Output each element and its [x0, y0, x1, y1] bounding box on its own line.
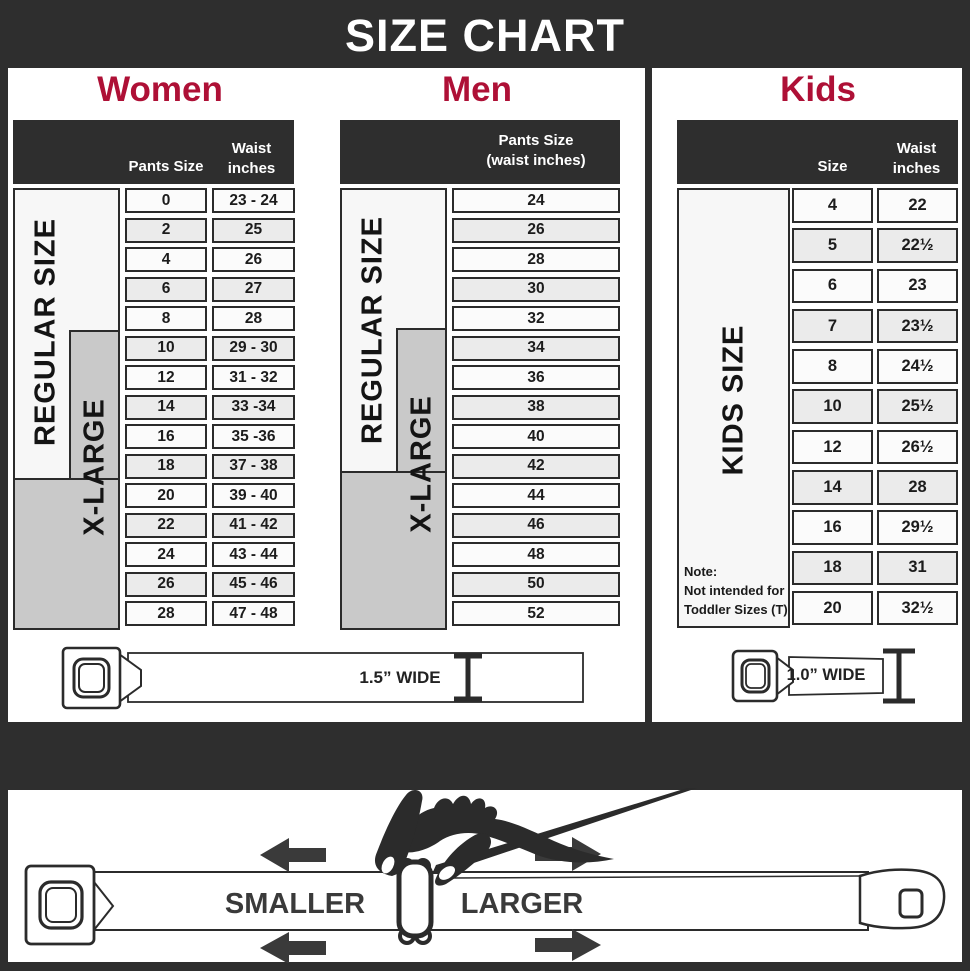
waist-cell: 43 - 44: [212, 542, 295, 567]
waist-cell: 35 -36: [212, 424, 295, 449]
waist-cell: 31: [877, 551, 958, 586]
pants-size-cell: 10: [125, 336, 207, 361]
women-table-row: 2 25: [125, 218, 297, 243]
size-cell: 20: [792, 591, 873, 626]
women-xlarge-label: X-LARGE: [79, 398, 112, 536]
kids-table-row: 5 22½: [792, 228, 958, 263]
men-table-header: Pants Size(waist inches): [340, 120, 620, 184]
women-table-row: 22 41 - 42: [125, 513, 297, 538]
pants-size-cell: 34: [452, 336, 620, 361]
kids-heading: Kids: [780, 70, 856, 110]
waist-cell: 41 - 42: [212, 513, 295, 538]
pants-size-cell: 38: [452, 395, 620, 420]
kids-table-row: 7 23½: [792, 309, 958, 344]
page-title: SIZE CHART: [345, 10, 625, 62]
pants-size-cell: 4: [125, 247, 207, 272]
men-table-row: 36: [452, 365, 620, 390]
pants-size-cell: 36: [452, 365, 620, 390]
waist-cell: 23½: [877, 309, 958, 344]
size-cell: 10: [792, 389, 873, 424]
size-cell: 14: [792, 470, 873, 505]
waist-cell: 28: [877, 470, 958, 505]
pants-size-cell: 24: [125, 542, 207, 567]
pants-size-cell: 12: [125, 365, 207, 390]
pants-size-cell: 28: [452, 247, 620, 272]
kids-table-row: 4 22: [792, 188, 958, 223]
men-regular-size-label: REGULAR SIZE: [357, 216, 390, 444]
arrow-right-icon: [535, 929, 601, 961]
section-divider: [645, 68, 652, 722]
waist-cell: 31 - 32: [212, 365, 295, 390]
pants-size-cell: 26: [452, 218, 620, 243]
women-table-row: 24 43 - 44: [125, 542, 297, 567]
pants-size-cell: 32: [452, 306, 620, 331]
width-marker-icon: [883, 651, 915, 701]
title-banner: SIZE CHART: [0, 0, 970, 68]
kids-belt-width-label: 1.0” WIDE: [766, 666, 886, 685]
waist-cell: 29½: [877, 510, 958, 545]
adult-belt-width-label: 1.5” WIDE: [330, 668, 470, 688]
kids-table-header: Size Waistinches: [677, 120, 958, 184]
waist-cell: 33 -34: [212, 395, 295, 420]
men-table-row: 26: [452, 218, 620, 243]
waist-cell: 22: [877, 188, 958, 223]
women-regular-size-label: REGULAR SIZE: [30, 218, 63, 446]
women-heading: Women: [97, 70, 223, 110]
arrow-left-icon: [260, 932, 326, 963]
women-col2-header: Waistinches: [209, 139, 294, 180]
men-table-row: 32: [452, 306, 620, 331]
waist-cell: 26½: [877, 430, 958, 465]
kids-table-row: 10 25½: [792, 389, 958, 424]
size-cell: 4: [792, 188, 873, 223]
kids-note: Note: Not intended for Toddler Sizes (T): [684, 563, 788, 620]
men-table-row: 34: [452, 336, 620, 361]
arrow-left-icon: [260, 838, 326, 872]
kids-table-row: 6 23: [792, 269, 958, 304]
waist-cell: 23: [877, 269, 958, 304]
pants-size-cell: 18: [125, 454, 207, 479]
men-col-header: Pants Size(waist inches): [452, 131, 620, 172]
men-table-row: 42: [452, 454, 620, 479]
men-xlarge-label: X-LARGE: [406, 395, 439, 533]
pants-size-cell: 24: [452, 188, 620, 213]
pants-size-cell: 20: [125, 483, 207, 508]
women-table-row: 20 39 - 40: [125, 483, 297, 508]
women-table-row: 8 28: [125, 306, 297, 331]
size-cell: 5: [792, 228, 873, 263]
smaller-label: SMALLER: [210, 888, 380, 921]
waist-cell: 29 - 30: [212, 336, 295, 361]
women-table-row: 10 29 - 30: [125, 336, 297, 361]
women-size-table: 0 23 - 24 2 25 4 26 6 27 8 28: [125, 188, 297, 631]
men-table-row: 44: [452, 483, 620, 508]
waist-cell: 37 - 38: [212, 454, 295, 479]
size-cell: 6: [792, 269, 873, 304]
waist-cell: 25: [212, 218, 295, 243]
men-heading: Men: [442, 70, 512, 110]
pants-size-cell: 6: [125, 277, 207, 302]
pants-size-cell: 40: [452, 424, 620, 449]
pants-size-cell: 30: [452, 277, 620, 302]
pants-size-cell: 14: [125, 395, 207, 420]
pants-size-cell: 48: [452, 542, 620, 567]
size-chart-infographic: SIZE CHART Women Men Kids Pants Size Wai…: [0, 0, 970, 971]
men-table-row: 30: [452, 277, 620, 302]
men-table-row: 40: [452, 424, 620, 449]
size-cell: 16: [792, 510, 873, 545]
bottom-frame: [0, 962, 970, 971]
pants-size-cell: 16: [125, 424, 207, 449]
pants-size-cell: 42: [452, 454, 620, 479]
women-table-header: Pants Size Waistinches: [13, 120, 294, 184]
men-table-row: 38: [452, 395, 620, 420]
waist-cell: 27: [212, 277, 295, 302]
waist-cell: 28: [212, 306, 295, 331]
size-cell: 7: [792, 309, 873, 344]
women-table-row: 4 26: [125, 247, 297, 272]
kids-table-row: 18 31: [792, 551, 958, 586]
men-table-row: 52: [452, 601, 620, 626]
waist-cell: 22½: [877, 228, 958, 263]
waist-cell: 23 - 24: [212, 188, 295, 213]
waist-cell: 45 - 46: [212, 572, 295, 597]
size-cell: 8: [792, 349, 873, 384]
kids-table-row: 8 24½: [792, 349, 958, 384]
women-table-row: 12 31 - 32: [125, 365, 297, 390]
women-col1-header: Pants Size: [123, 157, 209, 177]
pants-size-cell: 46: [452, 513, 620, 538]
pants-size-cell: 50: [452, 572, 620, 597]
pants-size-cell: 8: [125, 306, 207, 331]
men-table-row: 46: [452, 513, 620, 538]
adjust-banner: How to adjust....: [0, 722, 970, 790]
men-table-row: 50: [452, 572, 620, 597]
adjuster-slider: [399, 860, 431, 943]
pants-size-cell: 44: [452, 483, 620, 508]
waist-cell: 26: [212, 247, 295, 272]
pants-size-cell: 22: [125, 513, 207, 538]
belt-tip: [860, 870, 944, 929]
adjust-illustration: [0, 788, 970, 963]
waist-cell: 24½: [877, 349, 958, 384]
women-table-row: 28 47 - 48: [125, 601, 297, 626]
waist-cell: 32½: [877, 591, 958, 626]
kids-table-row: 14 28: [792, 470, 958, 505]
kids-size-label: KIDS SIZE: [718, 325, 751, 476]
pants-size-cell: 28: [125, 601, 207, 626]
waist-cell: 47 - 48: [212, 601, 295, 626]
men-table-row: 24: [452, 188, 620, 213]
kids-col1-header: Size: [792, 157, 873, 177]
men-table-row: 28: [452, 247, 620, 272]
women-table-row: 26 45 - 46: [125, 572, 297, 597]
kids-table-row: 16 29½: [792, 510, 958, 545]
women-table-row: 18 37 - 38: [125, 454, 297, 479]
kids-table-row: 20 32½: [792, 591, 958, 626]
kids-table-row: 12 26½: [792, 430, 958, 465]
women-table-row: 0 23 - 24: [125, 188, 297, 213]
men-size-table: 24 26 28 30 32 34 36: [452, 188, 620, 631]
kids-size-table: 4 22 5 22½ 6 23 7 23½ 8 24½: [792, 188, 958, 631]
women-table-row: 14 33 -34: [125, 395, 297, 420]
women-table-row: 6 27: [125, 277, 297, 302]
waist-cell: 39 - 40: [212, 483, 295, 508]
size-cell: 12: [792, 430, 873, 465]
pants-size-cell: 26: [125, 572, 207, 597]
kids-col2-header: Waistinches: [875, 139, 958, 180]
adult-belt-diagram: [8, 645, 608, 715]
larger-label: LARGER: [437, 888, 607, 921]
pants-size-cell: 2: [125, 218, 207, 243]
pants-size-cell: 0: [125, 188, 207, 213]
waist-cell: 25½: [877, 389, 958, 424]
pants-size-cell: 52: [452, 601, 620, 626]
women-table-row: 16 35 -36: [125, 424, 297, 449]
size-cell: 18: [792, 551, 873, 586]
men-table-row: 48: [452, 542, 620, 567]
